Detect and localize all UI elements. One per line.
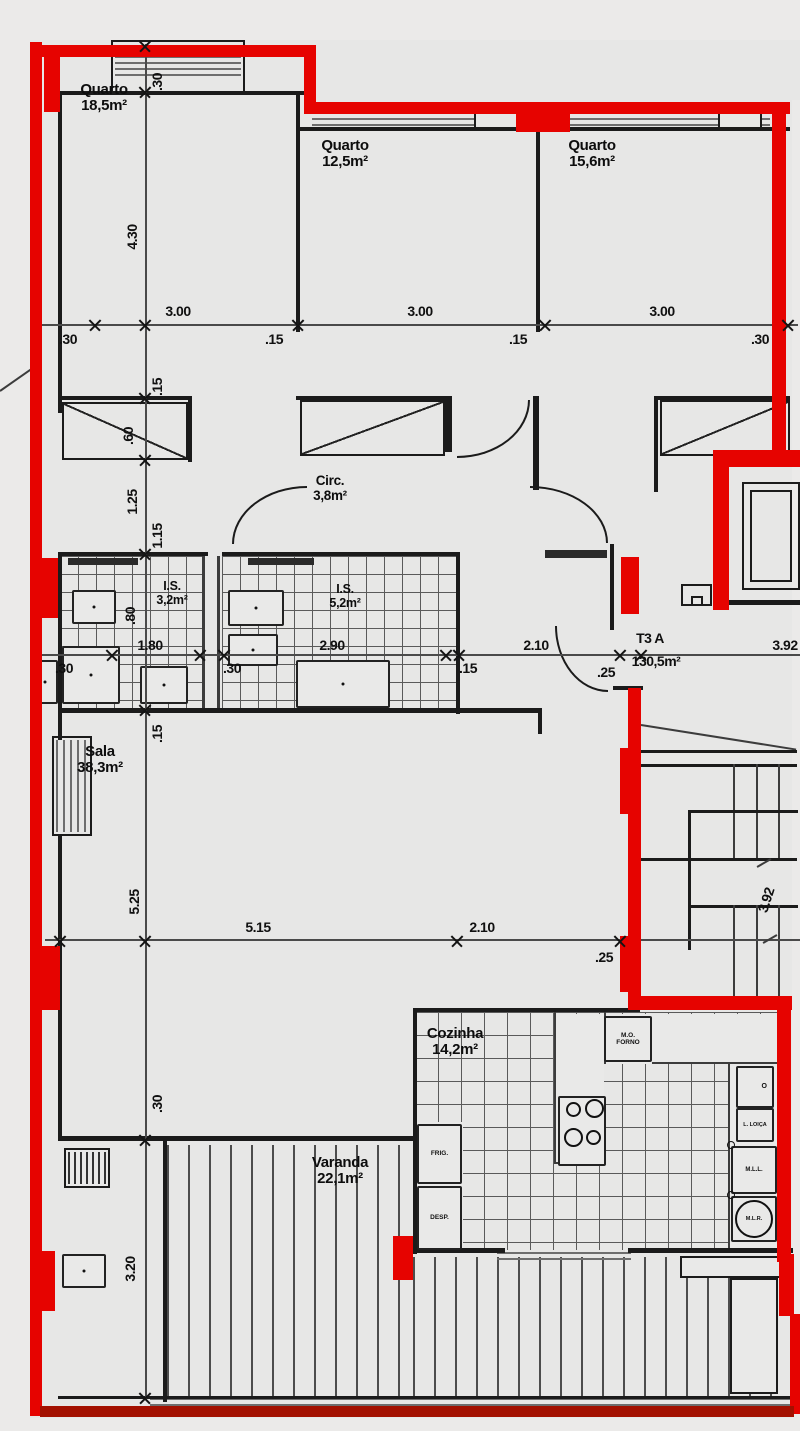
pantry-label: DESP. <box>430 1214 449 1221</box>
red-wall <box>42 558 58 618</box>
bathtub-fixture <box>296 660 390 708</box>
room-area: 3,8m² <box>313 488 347 503</box>
stair-well-line <box>688 810 691 950</box>
balcony-edge-line <box>58 1396 794 1399</box>
room-area: 14,2m² <box>432 1041 478 1058</box>
wall <box>58 396 192 400</box>
dim-label: .60 <box>120 427 136 445</box>
wall <box>610 544 614 630</box>
sliding-door <box>248 558 314 565</box>
room-name: Quarto <box>568 137 615 154</box>
dim-label: .30 <box>223 660 241 676</box>
counter-edge <box>652 1062 790 1064</box>
margin-left <box>0 0 30 1431</box>
room-label-bathroom2: I.S. 5,2m² <box>310 583 380 610</box>
wall <box>538 708 542 734</box>
red-wall <box>790 1314 800 1414</box>
wall <box>58 708 542 713</box>
dim-label: .30 <box>59 331 77 347</box>
washing-machine-drum: M.L.R. <box>735 1200 773 1238</box>
room-label-bedroom3: Quarto 15,6m² <box>547 138 637 170</box>
dim-label: 2.10 <box>469 919 494 935</box>
balcony-grille-slats <box>68 1152 106 1184</box>
dim-label: .15 <box>509 331 527 347</box>
stair-landing-line <box>641 858 797 861</box>
fridge-label: FRIG. <box>431 1150 448 1157</box>
dim-label: .15 <box>149 378 165 396</box>
hall-niche-inner <box>691 596 703 606</box>
wall <box>654 396 658 492</box>
sink-fixture <box>72 590 116 624</box>
wardrobe-bedroom2 <box>300 400 445 456</box>
room-name: Sala <box>85 743 115 760</box>
room-label-balcony: Varanda 22,1m² <box>292 1155 388 1187</box>
room-name: Circ. <box>316 473 345 488</box>
dimension-line <box>33 654 800 656</box>
stair-tread <box>778 905 780 1000</box>
sink-fixture <box>228 590 284 626</box>
margin-bottom <box>0 1418 800 1431</box>
sliding-door <box>545 550 607 558</box>
wall <box>628 1248 793 1253</box>
red-wall <box>516 112 570 132</box>
room-name: I.S. <box>163 579 181 593</box>
stair-landing-line <box>688 810 798 813</box>
toilet-fixture <box>140 666 188 704</box>
balcony-braced-panel <box>730 1278 778 1394</box>
kitchen-door-sill <box>497 1252 631 1260</box>
dim-label: .30 <box>751 331 769 347</box>
red-wall <box>713 450 729 610</box>
room-name: Varanda <box>312 1154 368 1171</box>
room-name: I.S. <box>336 582 354 596</box>
wall <box>58 1136 417 1141</box>
sink-unit-box: L. LOIÇA <box>736 1108 774 1142</box>
room-name: Quarto <box>80 81 127 98</box>
dim-label: .15 <box>149 725 165 743</box>
room-label-bathroom1: I.S. 3,2m² <box>137 580 207 607</box>
dim-label: .30 <box>149 73 165 91</box>
dim-label: 1.25 <box>124 489 140 514</box>
red-wall <box>44 48 60 112</box>
wall <box>222 552 460 556</box>
burner-icon <box>585 1099 604 1118</box>
unit-name-label: T3 A <box>636 630 664 646</box>
red-baseline-wall <box>40 1406 794 1417</box>
room-area: 18,5m² <box>81 97 127 114</box>
room-label-kitchen: Cozinha 14,2m² <box>407 1026 503 1058</box>
dimension-line <box>145 44 147 1400</box>
room-area: 12,5m² <box>322 153 368 170</box>
wall <box>456 552 460 714</box>
stair-line <box>641 764 797 767</box>
room-label-circulation: Circ. 3,8m² <box>290 474 370 503</box>
dim-label: .25 <box>597 664 615 680</box>
room-area: 5,2m² <box>329 596 360 610</box>
washing-machine-label: M.L.R. <box>746 1216 763 1222</box>
dim-label: 3.00 <box>407 303 432 319</box>
room-area: 38,3m² <box>77 759 123 776</box>
room-name: Cozinha <box>427 1025 483 1042</box>
duct-wall <box>217 556 220 712</box>
tap-box: O <box>736 1066 774 1108</box>
balcony-fixture <box>62 1254 106 1288</box>
valve-icon <box>727 1191 735 1199</box>
stair-line <box>641 750 797 753</box>
door-arc-entry <box>555 626 608 692</box>
red-wall <box>621 557 639 614</box>
sink-unit-label: L. LOIÇA <box>743 1122 767 1128</box>
dishwasher-label: M.L.L. <box>745 1167 762 1174</box>
dim-tick <box>84 314 105 335</box>
dim-label: 1.80 <box>137 637 162 653</box>
dim-label: 4.30 <box>124 224 140 249</box>
red-wall <box>777 1006 791 1262</box>
dim-label: .25 <box>595 949 613 965</box>
room-area: 15,6m² <box>569 153 615 170</box>
wall <box>533 396 539 490</box>
floor-plan-canvas: M.O. FORNO FRIG. DESP. O L. LOIÇA M.L.L.… <box>0 0 800 1431</box>
dim-tick <box>134 314 155 335</box>
bedroom1-window-glazing <box>115 56 241 76</box>
room-label-bedroom2: Quarto 12,5m² <box>300 138 390 170</box>
red-wall <box>42 1251 55 1311</box>
wall <box>536 127 540 332</box>
burner-icon <box>564 1128 583 1147</box>
wall <box>163 1140 167 1402</box>
door-arc-bedroom3 <box>530 486 608 543</box>
stair-tread <box>733 905 735 1000</box>
dim-label: 3.00 <box>649 303 674 319</box>
wardrobe-bedroom3 <box>660 400 790 456</box>
dim-label: .15 <box>459 660 477 676</box>
dim-tick <box>446 930 467 951</box>
room-area: 3,2m² <box>156 593 187 607</box>
balcony-threshold <box>680 1256 782 1278</box>
red-wall <box>42 946 60 1010</box>
counter-edge <box>728 1064 730 1248</box>
door-arc-bedroom2 <box>457 400 530 458</box>
red-wall <box>636 996 792 1010</box>
valve-icon <box>727 1141 735 1149</box>
red-wall <box>393 1236 413 1280</box>
dim-label: 5.15 <box>245 919 270 935</box>
dim-label: .15 <box>265 331 283 347</box>
oven-microwave-label-line2: FORNO <box>616 1039 639 1046</box>
sliding-door <box>68 558 138 565</box>
margin-top <box>0 0 800 40</box>
stair-landing-line <box>688 905 798 908</box>
wall <box>58 713 62 740</box>
red-wall <box>779 1254 794 1316</box>
dim-label: 3.00 <box>165 303 190 319</box>
wall <box>444 396 452 452</box>
wall <box>58 91 62 413</box>
dim-label: .30 <box>149 1095 165 1113</box>
room-name: Quarto <box>321 137 368 154</box>
counter-edge <box>554 1012 556 1164</box>
oven-microwave-box: M.O. FORNO <box>604 1016 652 1062</box>
dim-label: 1.15 <box>149 523 165 548</box>
dim-tick <box>609 644 630 665</box>
tap-label: O <box>762 1083 767 1091</box>
room-label-bedroom1: Quarto 18,5m² <box>59 82 149 114</box>
red-wall <box>40 45 314 57</box>
wall <box>188 396 192 462</box>
dim-label: 2.10 <box>523 637 548 653</box>
burner-icon <box>586 1130 601 1145</box>
dim-tick <box>134 930 155 951</box>
dim-label: 5.25 <box>126 889 142 914</box>
elevator-car <box>750 490 792 582</box>
fridge-box: FRIG. <box>417 1124 462 1184</box>
dishwasher-box: M.L.L. <box>731 1146 777 1194</box>
dim-tick <box>134 1129 155 1150</box>
dim-label: 3.92 <box>772 637 797 653</box>
pantry-box: DESP. <box>417 1186 462 1250</box>
unit-area-label: 130,5m² <box>632 653 681 669</box>
dim-tick <box>287 314 308 335</box>
oven-microwave-label-line1: M.O. <box>621 1032 635 1039</box>
dim-label-stairs: 3.92 <box>754 886 777 915</box>
dimension-line <box>45 939 800 941</box>
dim-label: 3.20 <box>122 1256 138 1281</box>
dim-label: 2.90 <box>319 637 344 653</box>
burner-icon <box>566 1102 581 1117</box>
room-area: 22,1m² <box>317 1170 363 1187</box>
wall <box>58 552 208 556</box>
red-wall <box>772 108 786 458</box>
stair-tread <box>756 905 758 1000</box>
dim-label: .80 <box>122 607 138 625</box>
stair-stringer-line <box>641 724 796 751</box>
room-label-living: Sala 38,3m² <box>55 744 145 776</box>
red-wall <box>620 748 641 814</box>
red-wall <box>30 42 42 1416</box>
dim-label: .30 <box>55 660 73 676</box>
